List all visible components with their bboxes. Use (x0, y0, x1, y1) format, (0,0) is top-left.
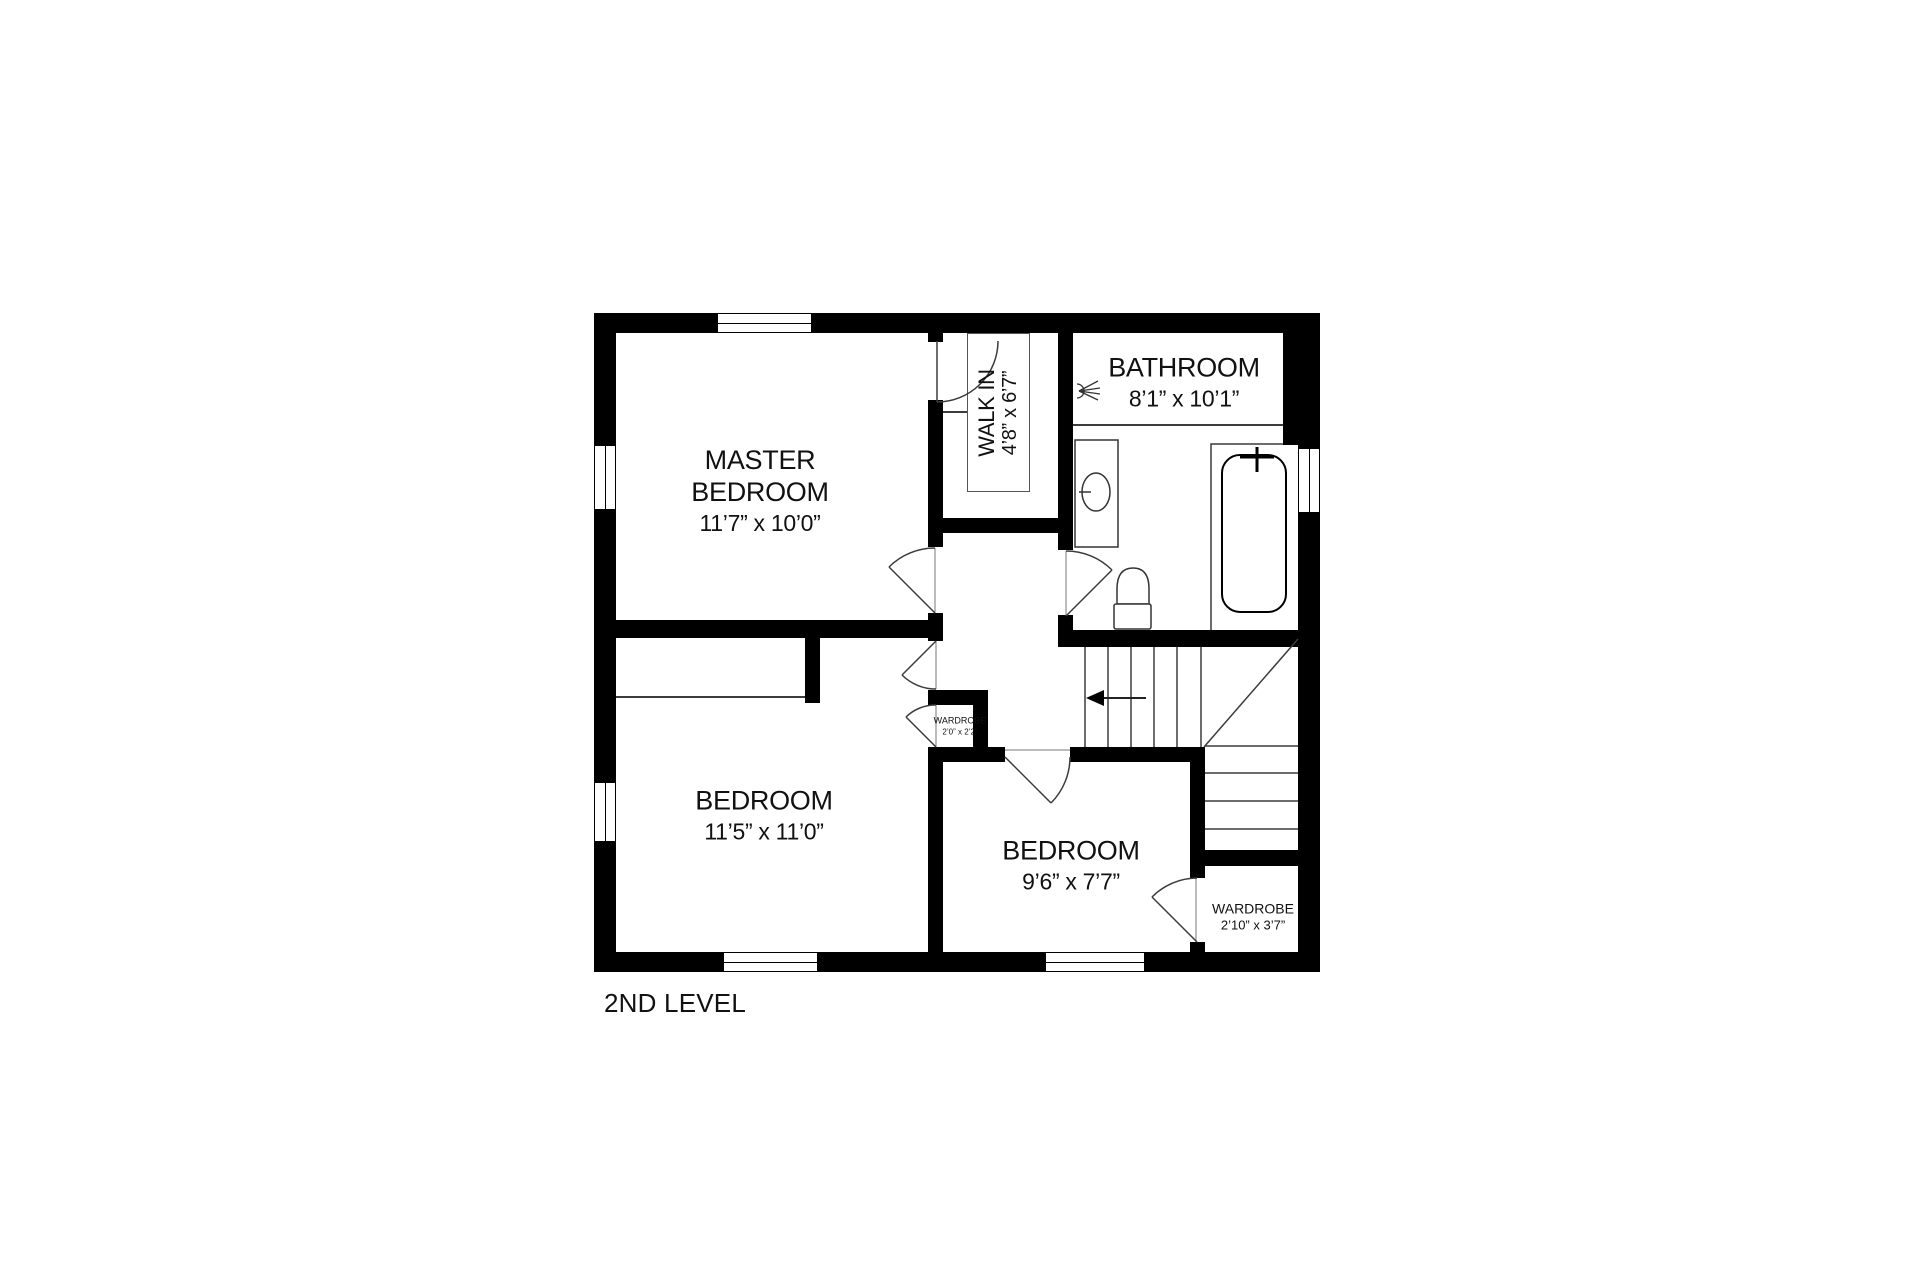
label-bedroom-right: BEDROOM 9’6” x 7’7” (1002, 836, 1139, 897)
room-dims: 4’8” x 6’7” (999, 369, 1022, 457)
bathtub-icon (1222, 447, 1286, 612)
label-wardrobe-large: WARDROBE 2’10” x 3’7” (1212, 899, 1294, 932)
room-dims: 2’0” x 2’2” (934, 727, 987, 736)
label-master-bedroom: MASTER BEDROOM 11’7” x 10’0” (665, 445, 855, 537)
wall-master-door-stub (928, 613, 943, 641)
plan-title: 2ND LEVEL (604, 988, 746, 1019)
closet-front-line (616, 696, 805, 698)
door-bedroom-left (902, 641, 936, 689)
stair-break-diagonal (1204, 639, 1298, 747)
wall-walkin-bottom (928, 518, 1073, 533)
wall-wardrobe2-top (1190, 850, 1298, 866)
room-name: BEDROOM (695, 786, 832, 818)
window-master-top (717, 313, 812, 333)
shower-head-icon (1077, 381, 1100, 400)
room-dims: 8’1” x 10’1” (1108, 385, 1260, 414)
toilet-icon (1114, 568, 1151, 629)
door-master-bedroom (889, 548, 935, 613)
door-wardrobe-large (1152, 878, 1197, 942)
room-dims: 9’6” x 7’7” (1002, 868, 1139, 897)
door-bedroom-right (1005, 757, 1070, 803)
wall-walkin-door-stub (928, 333, 943, 342)
wall-closet-stub (805, 638, 820, 703)
wall-outer-bottom (594, 952, 1320, 972)
label-wardrobe-small: WARDROBE 2’0” x 2’2” (934, 716, 987, 737)
wall-bedroom2-top-left (928, 747, 1005, 762)
window-bottom-left (723, 952, 818, 972)
wall-outer-left (594, 313, 616, 972)
window-left-lower (594, 782, 616, 842)
label-walk-in: WALK IN 4’8” x 6’7” (974, 369, 1022, 457)
room-name: WARDROBE (934, 716, 987, 728)
room-dims: 2’10” x 3’7” (1212, 918, 1294, 933)
wall-outer-top (594, 313, 1320, 333)
room-name: BATHROOM (1108, 353, 1260, 385)
wall-master-bottom (594, 620, 943, 638)
bathtub-alcove (1211, 444, 1283, 630)
bathroom-divider-line (1073, 424, 1283, 426)
wall-bathroom-right-pilaster (1283, 333, 1298, 445)
wall-bedroom2-top-right (1070, 747, 1205, 762)
window-bathroom-right (1298, 448, 1320, 513)
door-bathroom (1066, 551, 1112, 616)
window-left-upper (594, 445, 616, 510)
wall-wardrobe1-top (928, 690, 988, 705)
walkin-shelf-line (943, 411, 967, 413)
room-name: WARDROBE (1212, 899, 1294, 917)
room-dims: 11’5” x 11’0” (695, 818, 832, 847)
door-wardrobe-small (906, 705, 936, 747)
room-dims: 11’7” x 10’0” (665, 508, 855, 537)
window-bottom-right (1045, 952, 1145, 972)
room-name: BEDROOM (1002, 836, 1139, 868)
wall-bedroom2-right-lower (1190, 942, 1205, 972)
wall-bathroom-bottom (1058, 630, 1320, 647)
wall-bedrooms-divider (928, 747, 943, 972)
label-bathroom: BATHROOM 8’1” x 10’1” (1108, 353, 1260, 414)
wall-bathroom-left-upper (1058, 333, 1073, 550)
room-name: WALK IN (974, 369, 999, 457)
floor-plan-canvas: MASTER BEDROOM 11’7” x 10’0” WALK IN 4’8… (0, 0, 1920, 1279)
plan-symbols-layer (0, 0, 1920, 1279)
room-name: MASTER BEDROOM (665, 445, 855, 509)
label-bedroom-left: BEDROOM 11’5” x 11’0” (695, 786, 832, 847)
stair-direction-arrow-icon (1086, 690, 1146, 706)
sink-vanity-icon (1075, 440, 1118, 547)
